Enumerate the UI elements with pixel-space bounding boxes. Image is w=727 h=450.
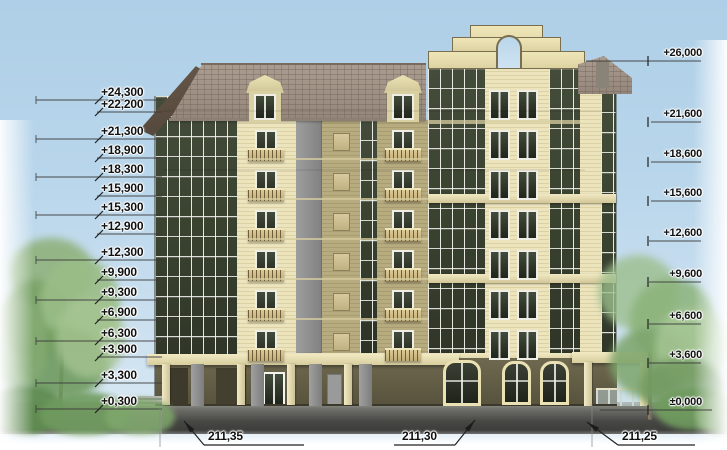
tower-window [489,90,510,120]
entrance-door [263,372,285,406]
vignette-bottom [0,430,727,450]
dormer-window-right [384,75,422,122]
tower-window [489,130,510,160]
floor-line [428,120,580,124]
tower-window [489,210,510,240]
pilaster [359,364,372,406]
floor-line [237,278,428,280]
column [287,364,295,405]
tower-window [517,250,538,280]
floor-line [237,318,428,320]
tower-window [489,170,510,200]
tower-window [517,130,538,160]
parapet-arch-opening [496,35,522,68]
dormer-glass [254,94,276,120]
stairwell-window [333,173,350,191]
stairwell-window [333,133,350,151]
column [344,364,352,405]
floor-line [237,158,428,160]
balcony-railing [385,348,421,361]
vignette-right [693,40,727,450]
stairwell-window [333,253,350,271]
pilaster [251,364,264,406]
tower-window [517,330,538,360]
stairwell-window [333,293,350,311]
column [237,364,245,405]
arched-window [443,360,481,406]
stairwell-window [333,333,350,351]
tower-window [517,210,538,240]
tower-window [489,250,510,280]
pilaster [309,364,322,406]
balcony-railing [248,348,284,361]
tree-foliage [55,298,125,378]
floor-line [237,238,428,240]
tower-window [489,330,510,360]
vignette-left [0,120,34,450]
roof-ridge [201,63,426,65]
tower-window [517,90,538,120]
dormer-window-left [246,75,284,122]
floor-line [237,198,428,200]
dormer-glass [392,94,414,120]
tower-window [517,290,538,320]
service-door [327,374,342,406]
stairwell-window [333,213,350,231]
arched-window [502,361,531,405]
tower-window [517,170,538,200]
tower-window [489,290,510,320]
architectural-elevation-drawing: +24,300+22,200+21,300+18,900+18,300+15,9… [0,0,727,450]
